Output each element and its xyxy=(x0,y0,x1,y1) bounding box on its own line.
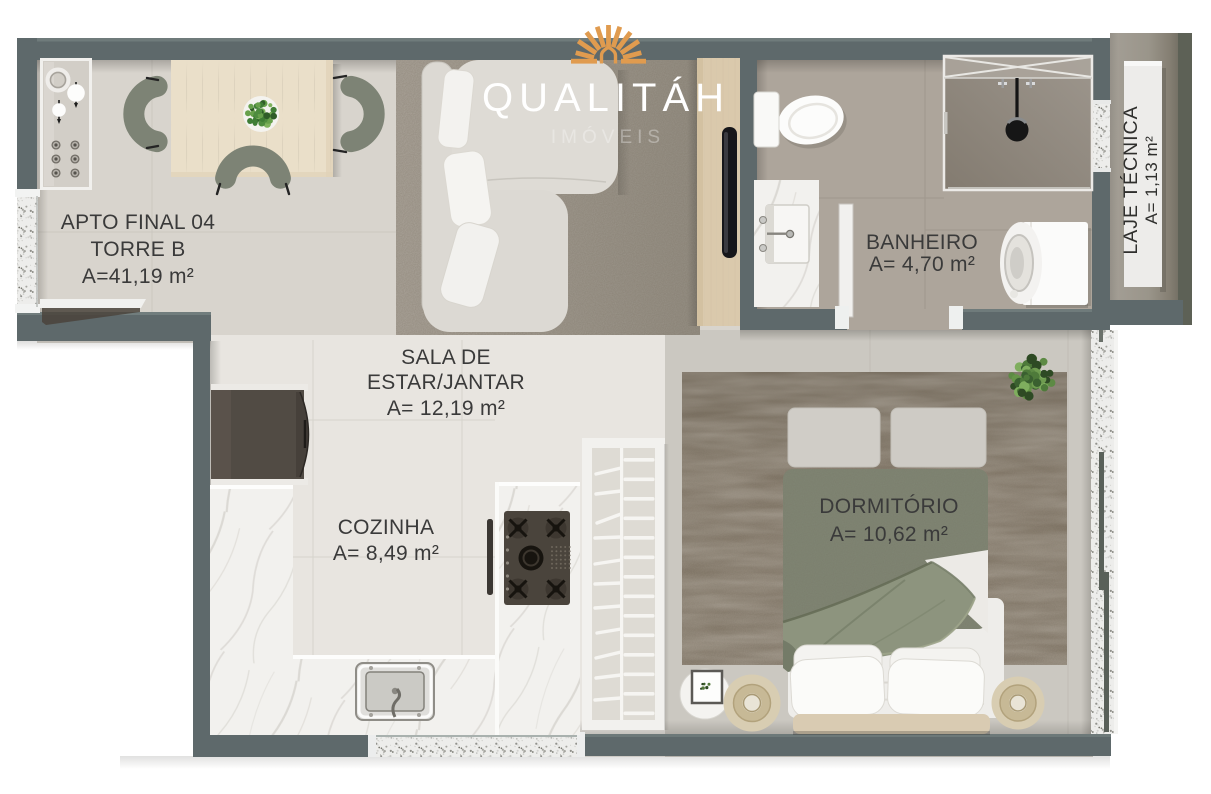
svg-text:IMÓVEIS: IMÓVEIS xyxy=(551,126,665,148)
svg-text:DORMITÓRIO: DORMITÓRIO xyxy=(819,495,959,518)
svg-text:SALA DE: SALA DE xyxy=(401,346,491,369)
svg-text:TORRE B: TORRE B xyxy=(90,238,185,261)
svg-text:A= 12,19 m²: A= 12,19 m² xyxy=(387,397,505,420)
svg-text:COZINHA: COZINHA xyxy=(338,516,435,539)
svg-text:QUALITÁH: QUALITÁH xyxy=(482,75,730,120)
svg-text:LAJE TÉCNICA: LAJE TÉCNICA xyxy=(1119,105,1142,254)
svg-text:BANHEIRO: BANHEIRO xyxy=(866,231,978,254)
svg-text:A= 4,70 m²: A= 4,70 m² xyxy=(869,253,975,276)
svg-text:A= 1,13 m²: A= 1,13 m² xyxy=(1142,136,1161,225)
svg-text:ESTAR/JANTAR: ESTAR/JANTAR xyxy=(367,371,525,394)
svg-text:A= 10,62 m²: A= 10,62 m² xyxy=(830,523,948,546)
svg-text:APTO FINAL 04: APTO FINAL 04 xyxy=(61,211,215,234)
svg-text:A=41,19 m²: A=41,19 m² xyxy=(82,265,194,288)
svg-text:A= 8,49 m²: A= 8,49 m² xyxy=(333,542,439,565)
